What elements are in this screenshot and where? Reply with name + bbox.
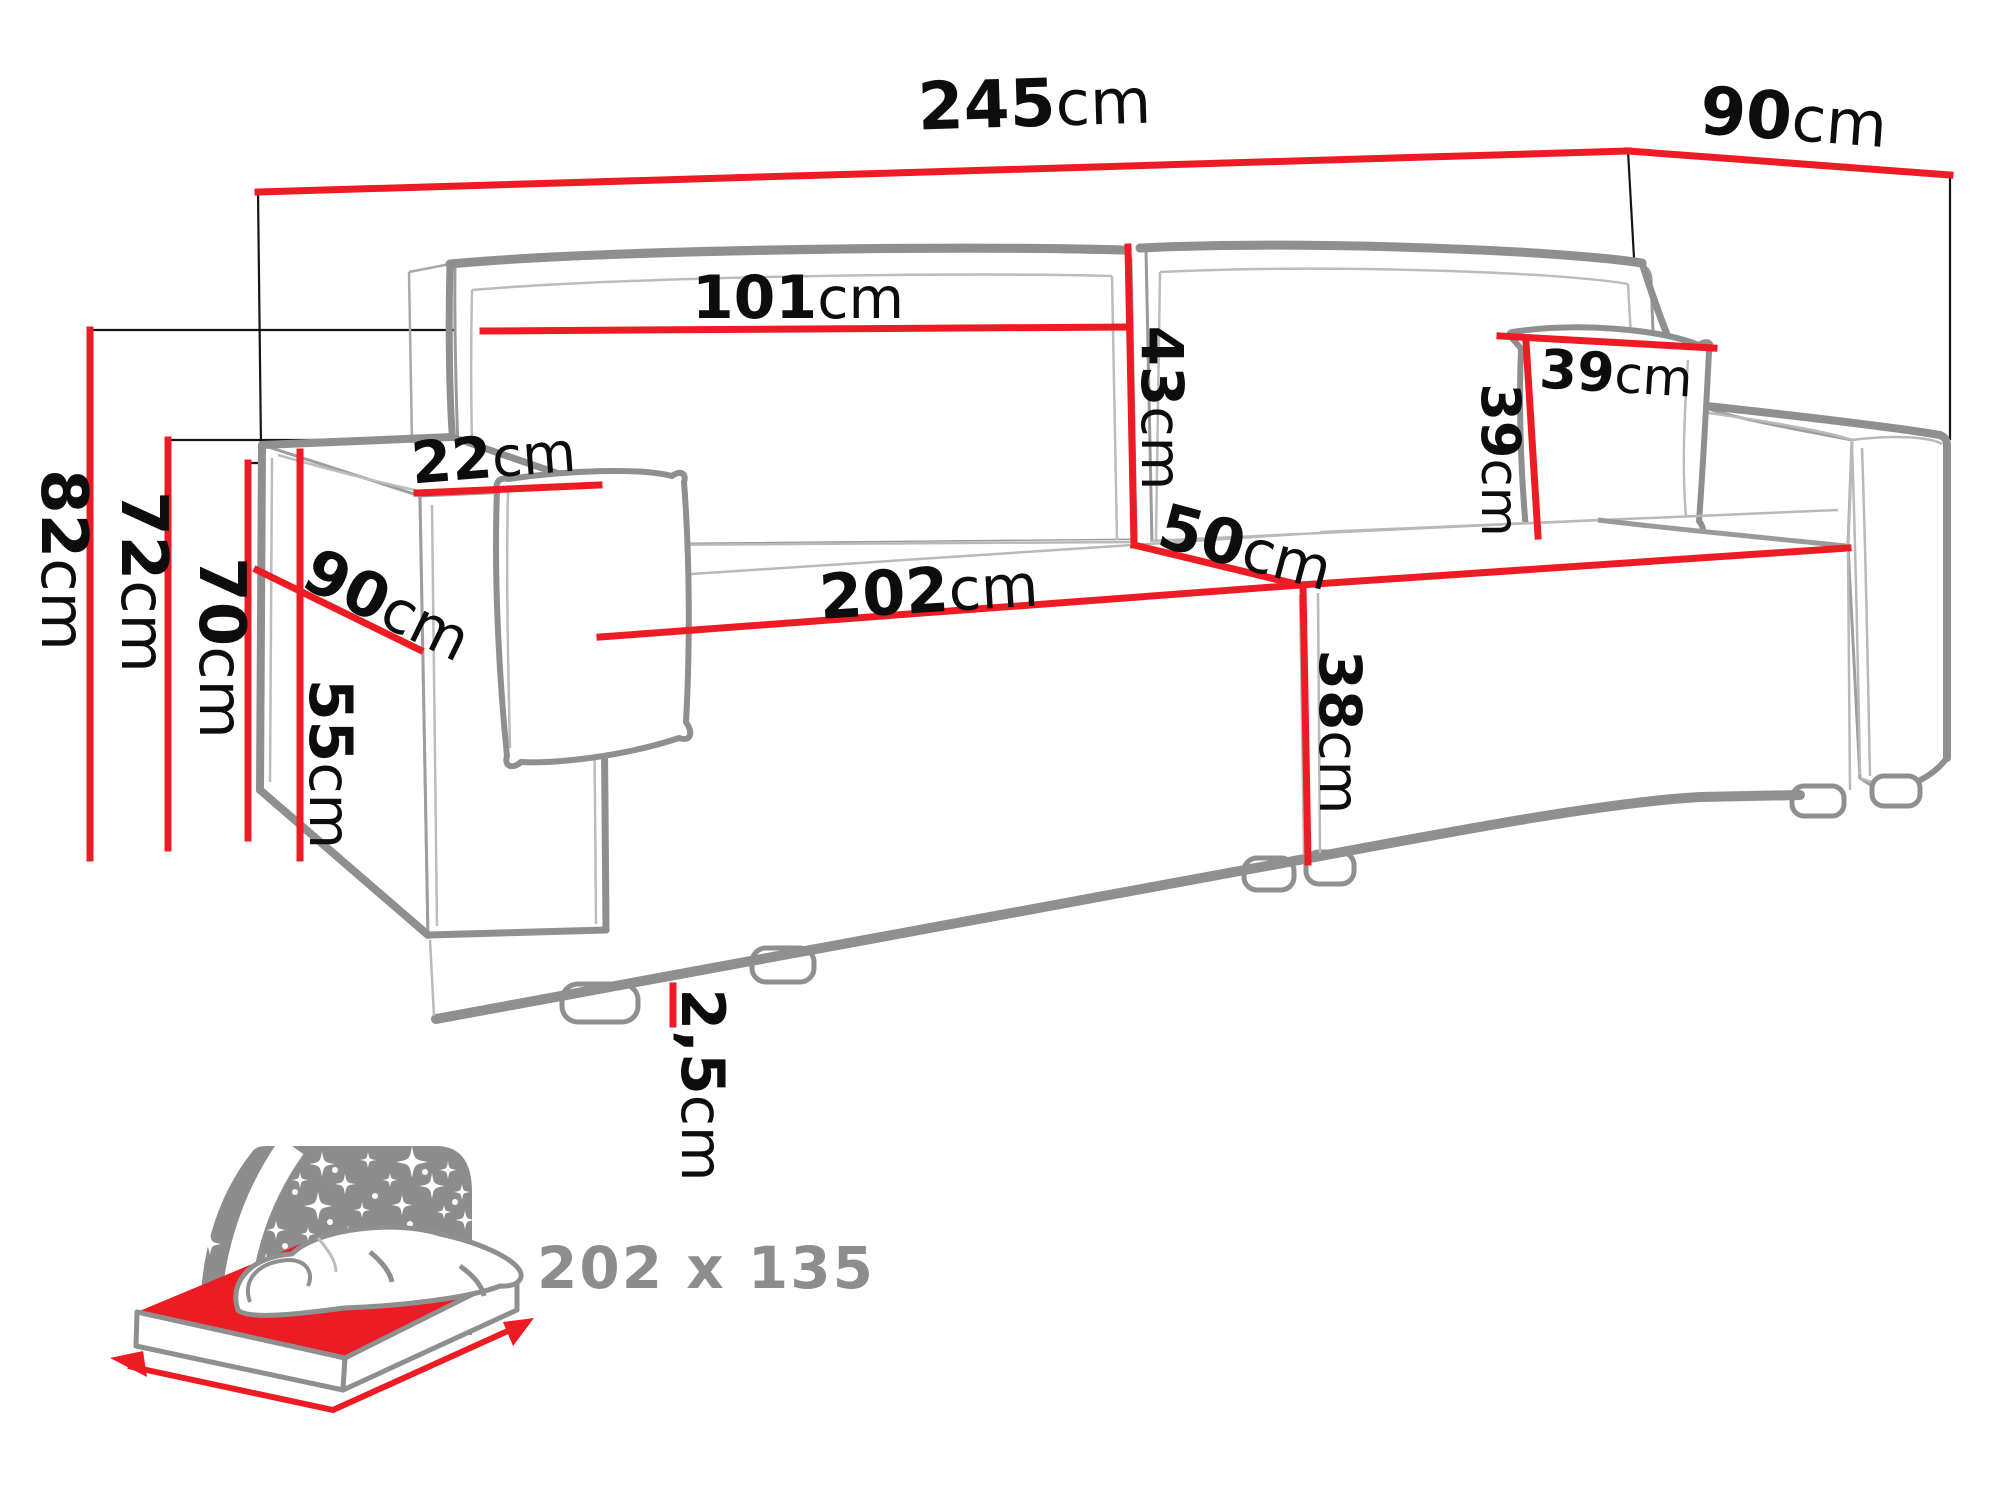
construction-line-corner (1628, 151, 1634, 258)
label-armrest-width: 22cm (409, 417, 579, 498)
sofa-dimension-diagram: 245cm 90cm 82cm 72cm 70cm 55cm 90cm 22cm… (0, 0, 2000, 1500)
label-seat-width: 202cm (817, 547, 1040, 633)
label-leg-height: 2,5cm (667, 988, 737, 1181)
label-total-width: 245cm (917, 62, 1152, 146)
label-armrest-height: 70cm (184, 557, 258, 739)
label-armrest-side-height: 55cm (295, 679, 365, 849)
label-back-cushion-width: 101cm (692, 263, 904, 333)
label-total-height: 82cm (26, 469, 100, 651)
sleeping-function-icon: 202 x 135 (110, 1146, 875, 1410)
label-backrest-height: 72cm (106, 491, 180, 673)
label-back-cushion-height: 43cm (1128, 326, 1196, 491)
dim-line-total-width (258, 151, 1628, 192)
sofa-drawing (260, 245, 1947, 1022)
diagram-canvas: 245cm 90cm 82cm 72cm 70cm 55cm 90cm 22cm… (0, 0, 2000, 1500)
back-panel-left (409, 264, 450, 442)
bed-size-label: 202 x 135 (537, 1234, 875, 1302)
label-seat-height: 38cm (1306, 650, 1374, 815)
pillow-left (496, 471, 690, 766)
construction-line-left (258, 192, 261, 447)
label-pillow-height: 39cm (1469, 383, 1532, 536)
label-pillow-width: 39cm (1538, 337, 1695, 409)
label-total-depth: 90cm (1697, 72, 1890, 163)
